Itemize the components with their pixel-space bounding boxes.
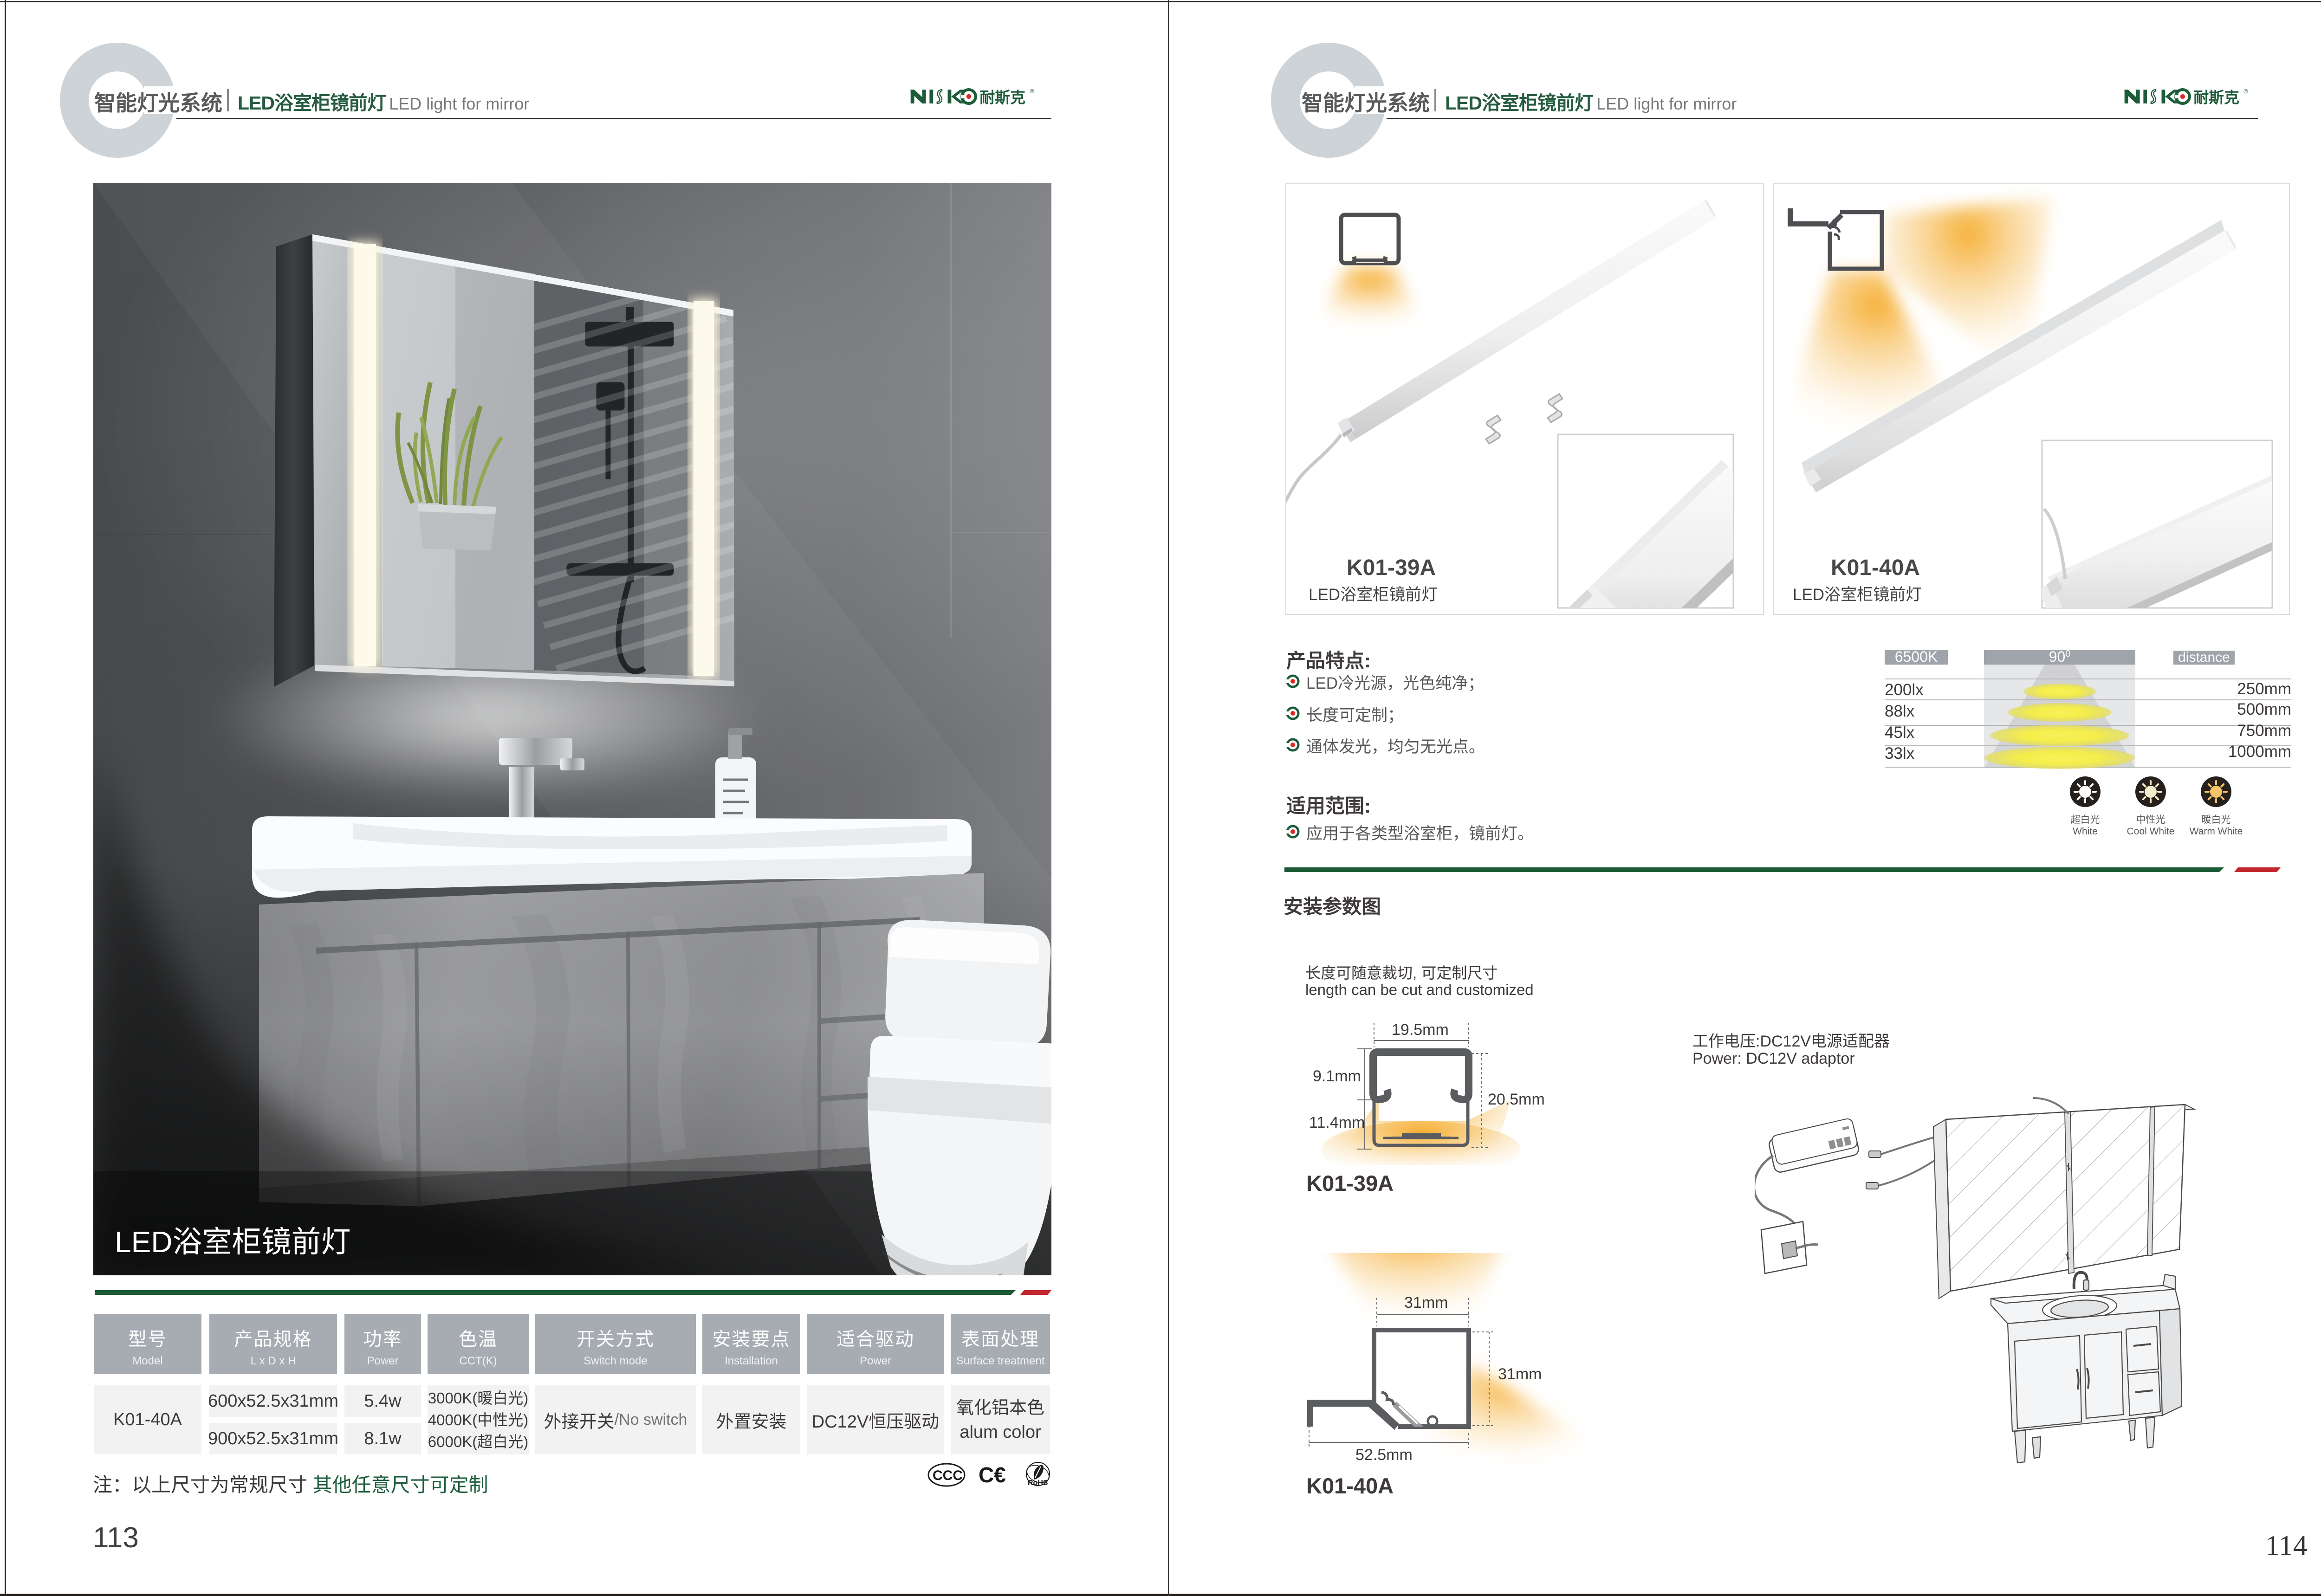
svg-text:200lx: 200lx — [1885, 681, 1924, 699]
svg-text:Cool White: Cool White — [2127, 826, 2175, 837]
svg-text:19.5mm: 19.5mm — [1392, 1021, 1449, 1039]
svg-text:K01-40A: K01-40A — [1831, 556, 1920, 580]
svg-text:暖白光: 暖白光 — [2202, 814, 2231, 825]
svg-text:20.5mm: 20.5mm — [1488, 1091, 1545, 1108]
svg-text:C€: C€ — [979, 1463, 1006, 1486]
svg-text:500mm: 500mm — [2237, 700, 2291, 718]
svg-text:超白光: 超白光 — [2071, 814, 2100, 825]
svg-text:中性光: 中性光 — [2136, 814, 2165, 825]
svg-text:33lx: 33lx — [1885, 744, 1915, 762]
svg-text:®: ® — [2243, 88, 2248, 95]
svg-text:®: ® — [1030, 88, 1034, 95]
svg-text:CCC: CCC — [933, 1468, 963, 1483]
svg-text:750mm: 750mm — [2237, 722, 2291, 740]
svg-text:9.1mm: 9.1mm — [1313, 1067, 1361, 1085]
svg-text:6500K: 6500K — [1895, 648, 1938, 665]
svg-text:LED浴室柜镜前灯: LED浴室柜镜前灯 — [1793, 586, 1922, 604]
svg-text:耐斯克: 耐斯克 — [979, 89, 1025, 105]
svg-text:耐斯克: 耐斯克 — [2193, 89, 2239, 105]
svg-text:K01-39A: K01-39A — [1347, 556, 1436, 580]
svg-text:88lx: 88lx — [1885, 702, 1915, 720]
svg-text:1000mm: 1000mm — [2228, 743, 2291, 761]
svg-text:52.5mm: 52.5mm — [1355, 1446, 1413, 1464]
svg-text:Warm White: Warm White — [2190, 826, 2243, 837]
svg-text:LED浴室柜镜前灯: LED浴室柜镜前灯 — [1309, 586, 1438, 604]
svg-text:LED浴室柜镜前灯: LED浴室柜镜前灯 — [115, 1225, 351, 1259]
svg-text:RoHS: RoHS — [1028, 1479, 1048, 1487]
svg-text:11.4mm: 11.4mm — [1309, 1114, 1365, 1131]
svg-text:31mm: 31mm — [1498, 1365, 1542, 1383]
svg-text:White: White — [2073, 826, 2098, 837]
svg-text:distance: distance — [2178, 650, 2230, 665]
svg-text:31mm: 31mm — [1404, 1294, 1448, 1312]
svg-text:250mm: 250mm — [2237, 680, 2291, 698]
svg-text:45lx: 45lx — [1885, 724, 1915, 742]
